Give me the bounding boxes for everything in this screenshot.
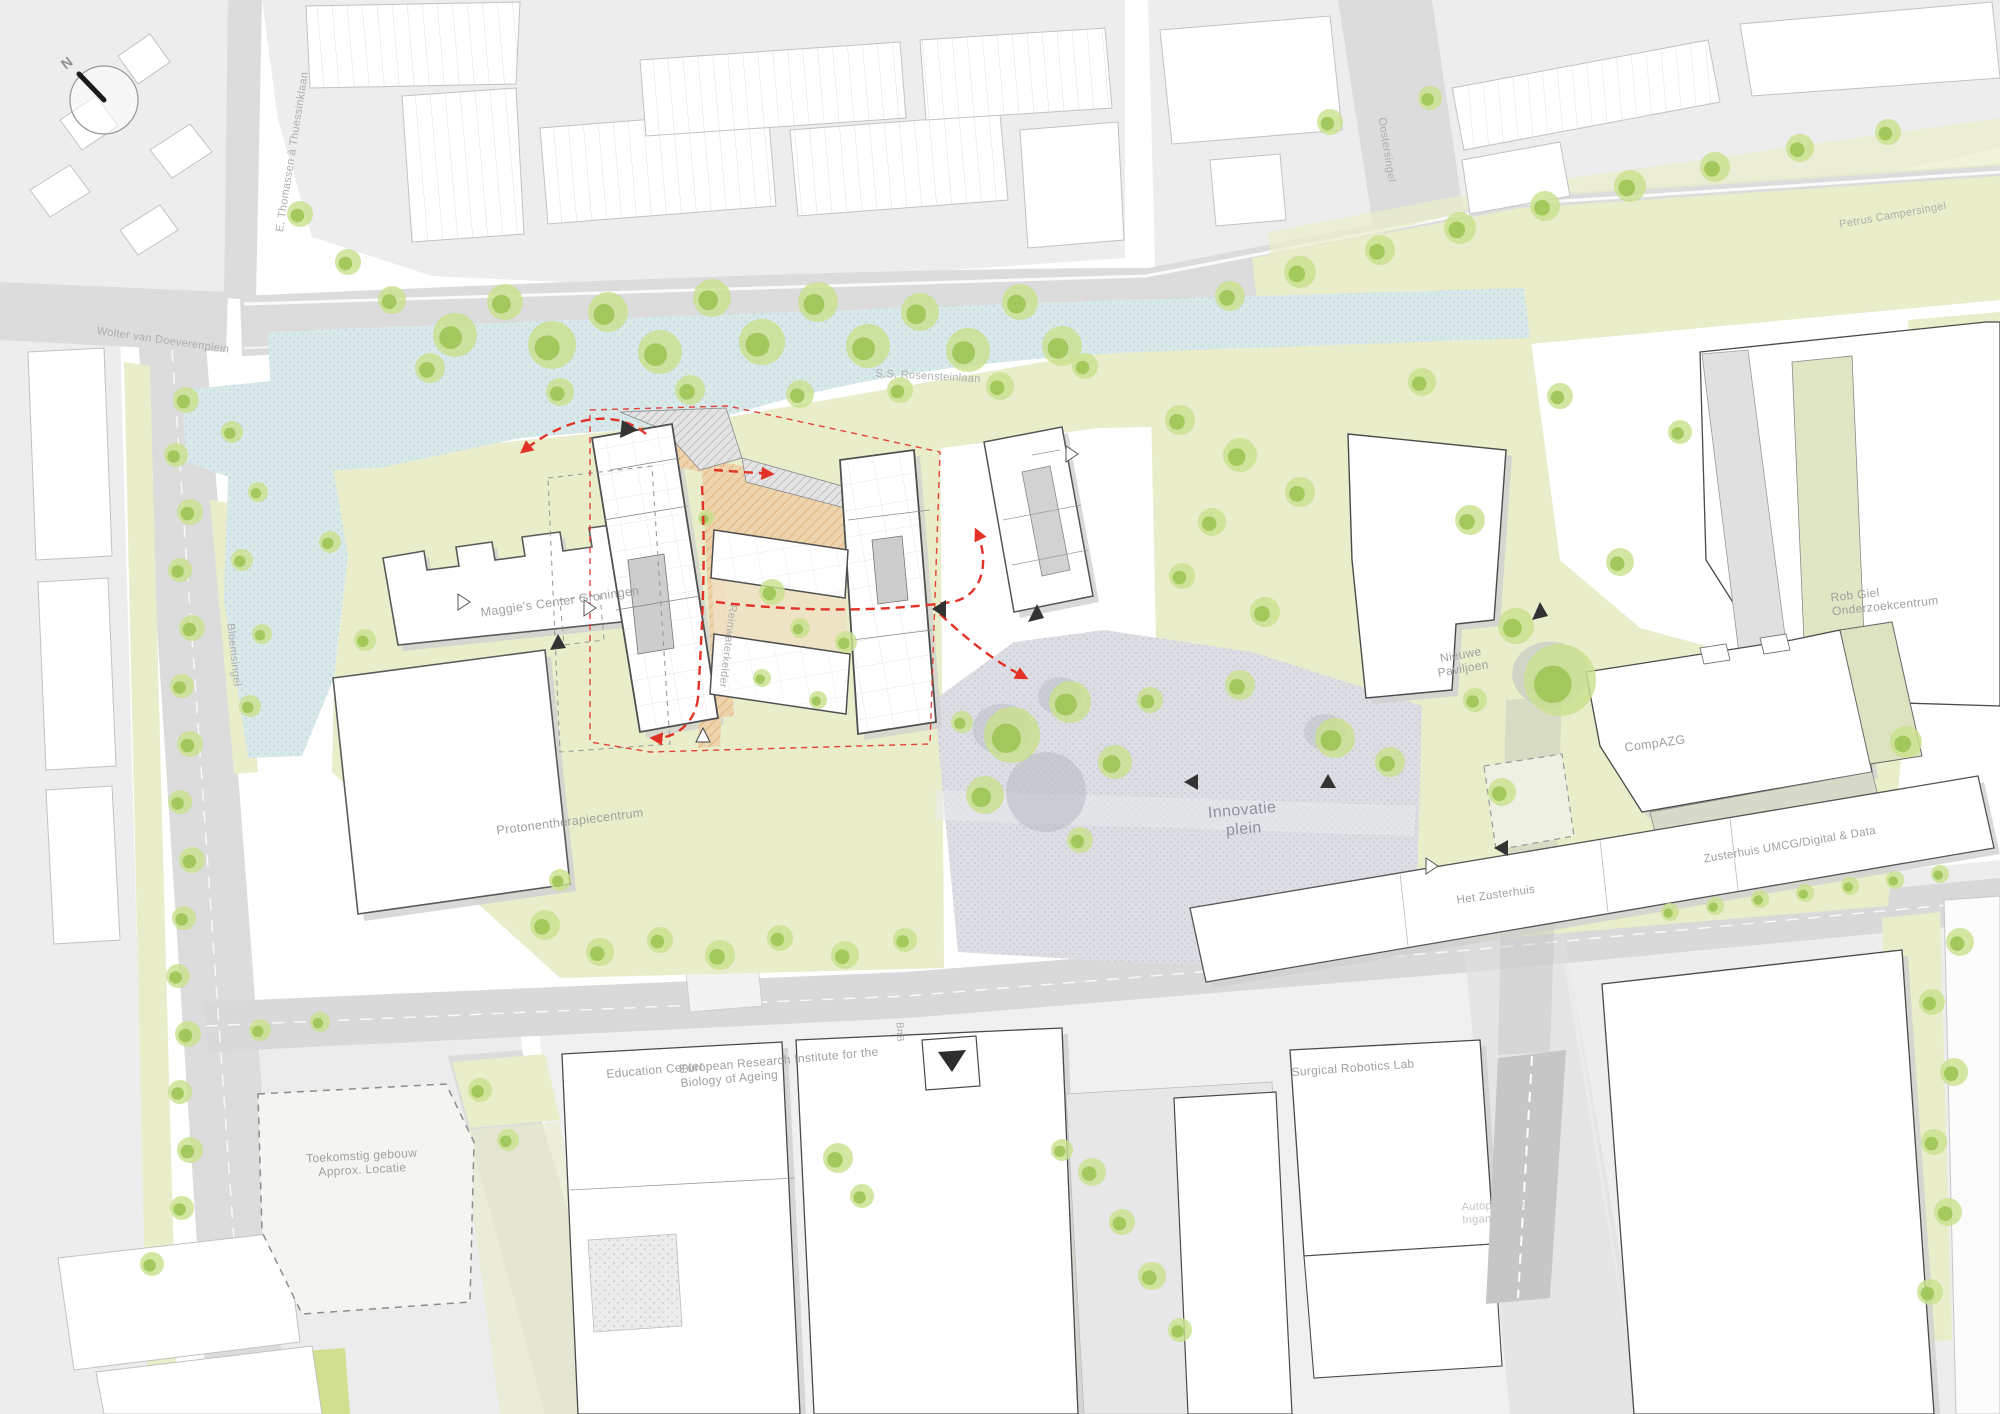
education-center-building bbox=[562, 1042, 800, 1414]
site-plan: N E. Thomassen à Thuessinklaan Wolter va… bbox=[0, 0, 2000, 1414]
surgical-robotics-lab-building bbox=[1290, 1040, 1494, 1256]
compass-icon bbox=[70, 66, 138, 134]
site-plan-drawing bbox=[0, 0, 2000, 1414]
protonentherapiecentrum-building bbox=[333, 650, 570, 914]
future-building-outline bbox=[258, 1084, 474, 1314]
